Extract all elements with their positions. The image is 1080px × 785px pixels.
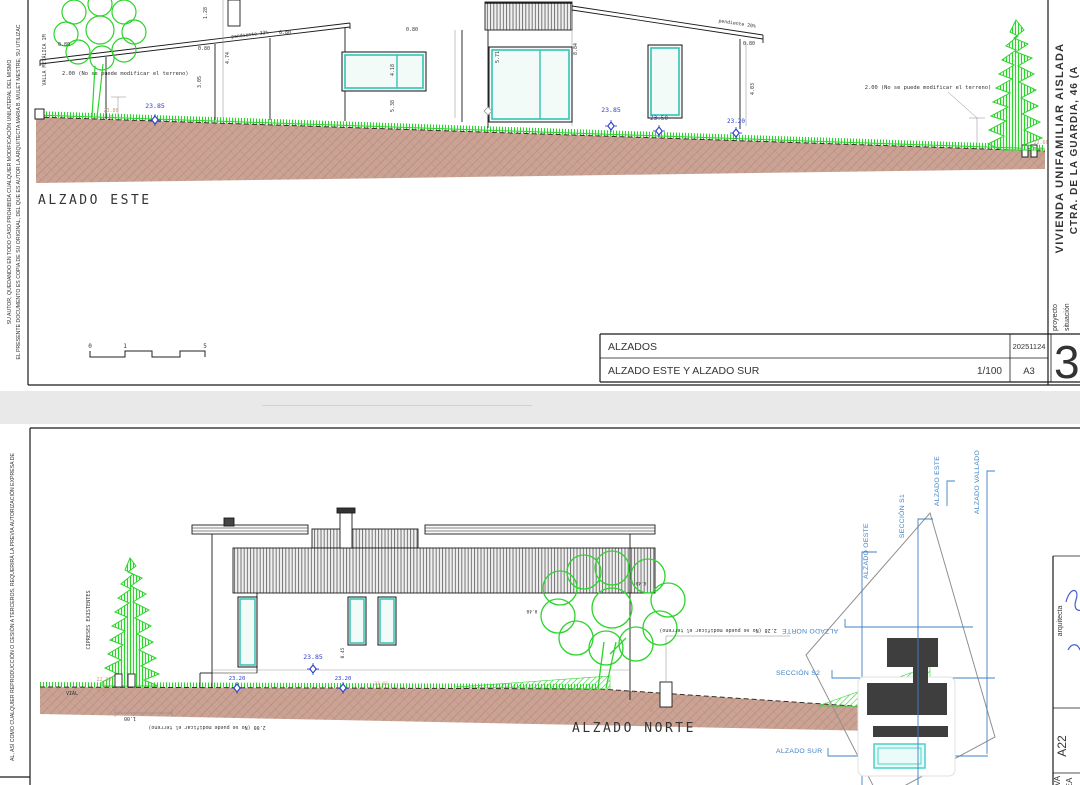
- terrain-note-left: 2.00 (No se puede modificar el terreno): [148, 724, 265, 730]
- cypress-label: CIPRESES EXISTENTES: [86, 590, 92, 649]
- level-label: 23.85: [303, 653, 323, 661]
- dim-label: 4.03: [750, 83, 756, 95]
- titleblock-title: ALZADOS: [608, 341, 657, 353]
- dim-label: 8.84: [573, 43, 579, 55]
- tree-cypress-existing: [102, 558, 159, 687]
- dim-label: 1.28: [203, 7, 209, 19]
- scale-tick: 0: [88, 343, 92, 350]
- level-label: 23.80: [103, 108, 118, 114]
- margin-code: A22: [1055, 735, 1069, 757]
- sheet-alzado-este: 23.80 23.85 23.85 23.50 23.20 22.60 2.00…: [0, 0, 1080, 391]
- titleblock-date: 20251124: [1013, 342, 1046, 351]
- key-plan: SECCIÓN S1 ALZADO ESTE ALZADO VALLADO AL…: [776, 450, 995, 785]
- level-label: 23.85: [601, 106, 621, 114]
- dim-label: 0.40: [635, 580, 646, 586]
- drawing-viewer: 23.80 23.85 23.85 23.50 23.20 22.60 2.00…: [0, 0, 1080, 785]
- roof-slab-left: [192, 525, 308, 534]
- titleblock-proyecto: proyecto: [1052, 304, 1059, 331]
- dim-label: 1.00: [124, 715, 136, 721]
- roof-slab-right: [425, 525, 655, 534]
- margin-partial-2: EA: [1065, 777, 1074, 785]
- east-elevation-drawing: 23.80 23.85 23.85 23.50 23.20 22.60 2.00…: [0, 0, 1080, 391]
- titleblock-paper: A3: [1023, 366, 1035, 377]
- keyplan-alzado-sur: ALZADO SUR: [776, 748, 822, 755]
- elevation-title-north: ALZADO NORTE: [572, 721, 696, 736]
- sheet-alzado-norte: VIAL 22.90 23.20 23.85 23.20 23.03 22.48…: [0, 424, 1080, 785]
- margin-project-address: CTRA. DE LA GUARDIA, 46 (A: [1069, 66, 1080, 234]
- margin-copyright-1: EL PRESENTE DOCUMENTO ES COPIA DE SU ORI…: [16, 24, 22, 359]
- titleblock-subtitle: ALZADO ESTE Y ALZADO SUR: [608, 365, 760, 377]
- dim-label: 5.71: [495, 51, 501, 63]
- scale-tick: 1: [123, 343, 127, 350]
- keyplan-alzado-este: ALZADO ESTE: [934, 456, 941, 506]
- dim-label: 0.80: [743, 41, 755, 47]
- level-label: 23.85: [145, 102, 165, 110]
- keyplan-seccion-s1: SECCIÓN S1: [897, 494, 906, 538]
- tree-cypress-right: [988, 20, 1042, 150]
- dim-label: 0.80: [406, 27, 418, 33]
- dim-label: 4.18: [390, 64, 396, 76]
- alzado-vallado-line: [987, 471, 995, 754]
- level-label: 23.50: [650, 115, 668, 122]
- margin-partial-1: VA: [1053, 775, 1062, 785]
- level-label: 23.20: [335, 676, 352, 682]
- level-label: 22.48: [643, 698, 658, 704]
- titleblock-situacion: situación: [1064, 303, 1071, 331]
- margin-project-title: VIVIENDA UNIFAMILIAR AISLADA: [1054, 43, 1066, 254]
- alzado-este-line: [947, 481, 955, 506]
- dim-label: 0.40: [526, 608, 537, 614]
- signature: [1066, 591, 1080, 651]
- terrain-note-right: 2.28 (No se puede modificar el terreno): [659, 627, 776, 633]
- terrain-note-right: 2.00 (No se puede modificar el terreno): [865, 85, 992, 91]
- dim-label: 0.80: [279, 30, 291, 36]
- page-separator: [262, 405, 532, 406]
- scale-bar: 0 1 5: [88, 343, 207, 357]
- dim-label: 4.74: [225, 52, 231, 64]
- terrain-note-left: 2.00 (No se puede modificar el terreno): [62, 71, 189, 77]
- dim-label: 0.45: [340, 647, 346, 658]
- north-elevation-drawing: VIAL 22.90 23.20 23.85 23.20 23.03 22.48…: [0, 424, 1080, 785]
- roof-slope-label: pendiente 20%: [718, 18, 756, 30]
- level-label: 23.03: [374, 681, 388, 687]
- keyplan-alzado-norte: ALZADO NORTE: [782, 627, 839, 634]
- keyplan-seccion-s2: SECCIÓN S2: [776, 668, 820, 677]
- vial-label: VIAL: [66, 691, 78, 697]
- margin-copyright-continued: AL, ASÍ COMO CUALQUIER REPRODUCCIÓN O CE…: [9, 452, 16, 760]
- keyplan-alzado-vallado: ALZADO VALLADO: [974, 450, 981, 514]
- keyplan-alzado-oeste: ALZADO OESTE: [863, 523, 870, 579]
- level-label: 23.20: [727, 118, 745, 125]
- chimney-cap: [337, 508, 355, 513]
- level-label: 22.90: [96, 677, 111, 683]
- level-label: 22.60: [1033, 140, 1048, 146]
- margin-arquitecta: arquitecta: [1057, 606, 1064, 637]
- dim-label: 0.80: [58, 42, 70, 48]
- dim-label: 3.05: [197, 76, 203, 88]
- dim-label: 5.38: [390, 100, 396, 112]
- scale-tick: 5: [203, 343, 207, 350]
- titleblock-sheet-number: 38: [1054, 336, 1080, 388]
- fence-label: VALLA METÁLICA 1M: [41, 34, 48, 85]
- elevation-title-east: ALZADO ESTE: [38, 193, 152, 208]
- boundary-wall-post: [660, 682, 672, 707]
- alzado-norte-line: [845, 619, 973, 627]
- titleblock-scale: 1/100: [977, 366, 1002, 377]
- roof-vent: [224, 518, 234, 526]
- dim-label: 0.80: [198, 46, 210, 52]
- tree-deciduous-left: [54, 0, 146, 117]
- chimney: [340, 510, 352, 548]
- level-label: 23.20: [229, 676, 246, 682]
- margin-copyright-2: SU AUTOR, QUEDANDO EN TODO CASO PROHIBID…: [6, 60, 13, 325]
